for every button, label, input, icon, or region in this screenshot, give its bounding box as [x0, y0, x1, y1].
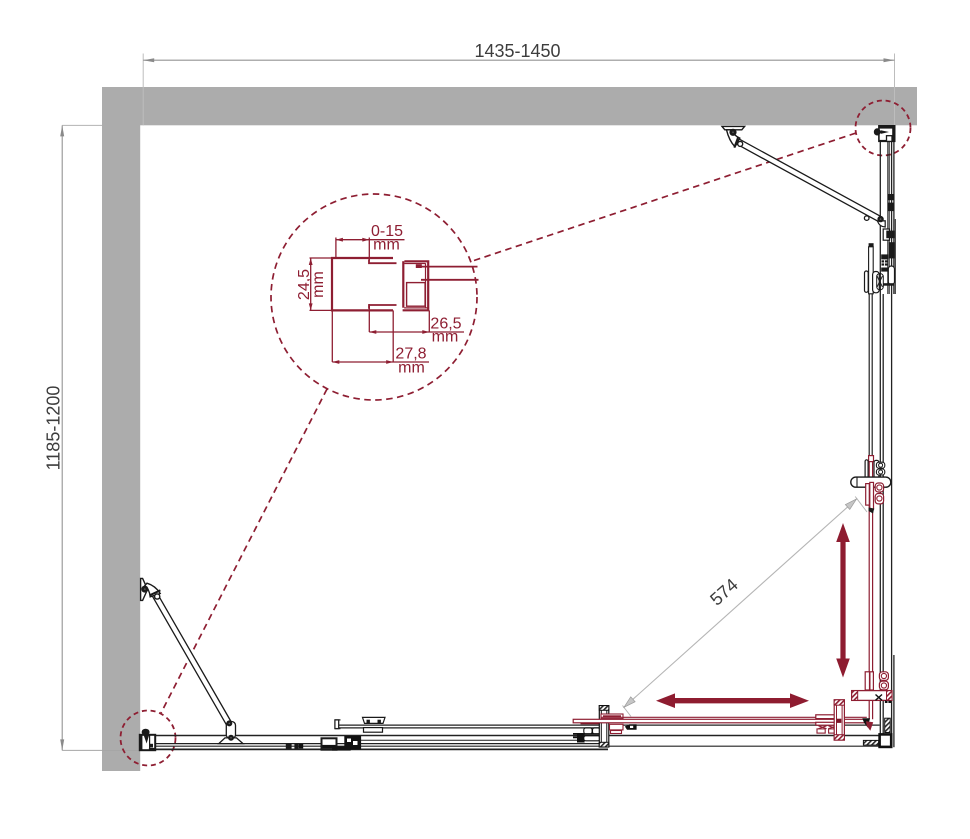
svg-text:1185-1200: 1185-1200	[44, 386, 64, 471]
svg-text:mm: mm	[373, 237, 400, 254]
svg-text:mm: mm	[432, 329, 459, 346]
svg-text:1435-1450: 1435-1450	[474, 41, 560, 61]
svg-text:mm: mm	[398, 360, 425, 377]
svg-text:574: 574	[706, 575, 742, 610]
svg-text:mm: mm	[310, 271, 327, 298]
